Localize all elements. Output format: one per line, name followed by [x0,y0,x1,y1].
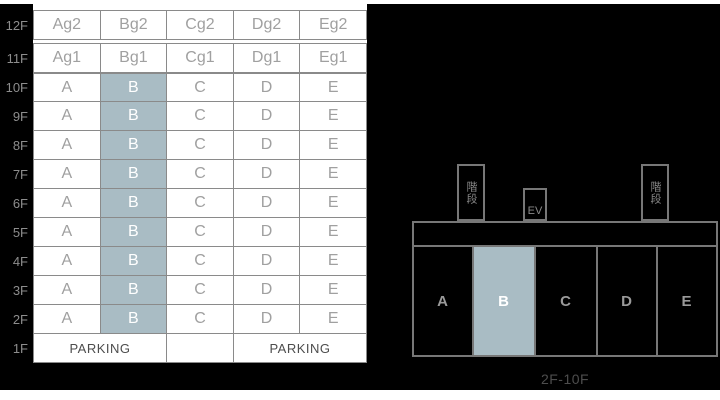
unit-cell-10F-D[interactable]: D [234,74,301,101]
floor-row-9F: ABCDE [33,102,367,131]
unit-cell-11F-Cg1[interactable]: Cg1 [167,44,234,72]
unit-cell-12F-Bg2[interactable]: Bg2 [101,11,168,39]
floor-label-3F: 3F [0,276,33,305]
parking-cell: PARKING [34,334,167,362]
unit-cell-4F-E[interactable]: E [300,247,366,275]
elevator-label: EV [528,205,543,217]
unit-cell-9F-D[interactable]: D [234,102,301,130]
unit-cell-5F-D[interactable]: D [234,218,301,246]
unit-cell-12F-Eg2[interactable]: Eg2 [300,11,366,39]
unit-cell-9F-C[interactable]: C [167,102,234,130]
unit-cell-3F-B[interactable]: B [101,276,168,304]
corridor [412,221,718,247]
floor-label-1F: 1F [0,334,33,363]
unit-cell-3F-D[interactable]: D [234,276,301,304]
floor-label-5F: 5F [0,218,33,247]
unit-cell-10F-A[interactable]: A [34,74,101,101]
unit-cell-5F-E[interactable]: E [300,218,366,246]
unit-cell-6F-D[interactable]: D [234,189,301,217]
unit-cell-6F-E[interactable]: E [300,189,366,217]
unit-cell-4F-C[interactable]: C [167,247,234,275]
unit-cell-10F-E[interactable]: E [300,74,366,101]
unit-cell-4F-B[interactable]: B [101,247,168,275]
floor-row-7F: ABCDE [33,160,367,189]
stairs-box-right: 階段 [641,164,669,221]
floor-row-6F: ABCDE [33,189,367,218]
unit-cell-5F-B[interactable]: B [101,218,168,246]
unit-cell-12F-Dg2[interactable]: Dg2 [234,11,301,39]
unit-cell-7F-C[interactable]: C [167,160,234,188]
unit-cell-6F-A[interactable]: A [34,189,101,217]
unit-cell-7F-A[interactable]: A [34,160,101,188]
unit-cell-7F-E[interactable]: E [300,160,366,188]
plan-units-row: ABCDE [412,245,718,357]
unit-cell-10F-C[interactable]: C [167,74,234,101]
unit-cell-8F-E[interactable]: E [300,131,366,159]
unit-cell-4F-A[interactable]: A [34,247,101,275]
stairs-label: 階段 [649,181,661,205]
floor-row-2F: ABCDE [33,305,367,334]
floor-label-12F: 12F [0,10,33,40]
unit-cell-3F-E[interactable]: E [300,276,366,304]
plan-caption: 2F-10F [412,371,718,387]
unit-cell-2F-A[interactable]: A [34,305,101,333]
plan-unit-A: A [412,245,474,357]
floor-label-10F: 10F [0,73,33,102]
floor-row-3F: ABCDE [33,276,367,305]
floor-row-1F: PARKINGPARKING [33,334,367,363]
floor-row-8F: ABCDE [33,131,367,160]
unit-cell-12F-Ag2[interactable]: Ag2 [34,11,101,39]
unit-cell-11F-Bg1[interactable]: Bg1 [101,44,168,72]
plan-unit-E: E [656,245,718,357]
unit-cell-2F-B[interactable]: B [101,305,168,333]
unit-cell-9F-E[interactable]: E [300,102,366,130]
unit-cell-2F-E[interactable]: E [300,305,366,333]
unit-cell-12F-Cg2[interactable]: Cg2 [167,11,234,39]
elevator-box: EV [523,188,547,221]
stairs-box-left: 階段 [457,164,485,221]
unit-cell-5F-A[interactable]: A [34,218,101,246]
floor-row-10F: ABCDE [33,73,367,102]
unit-cell-5F-C[interactable]: C [167,218,234,246]
unit-cell-8F-D[interactable]: D [234,131,301,159]
floor-label-4F: 4F [0,247,33,276]
plan-unit-D: D [596,245,658,357]
unit-cell-8F-C[interactable]: C [167,131,234,159]
unit-cell-11F-Ag1[interactable]: Ag1 [34,44,101,72]
unit-cell-2F-D[interactable]: D [234,305,301,333]
unit-cell-2F-C[interactable]: C [167,305,234,333]
unit-cell-11F-Eg1[interactable]: Eg1 [300,44,366,72]
unit-cell-3F-C[interactable]: C [167,276,234,304]
unit-cell-7F-D[interactable]: D [234,160,301,188]
stairs-label: 階段 [465,181,477,205]
empty-cell [167,334,234,362]
unit-cell-7F-B[interactable]: B [101,160,168,188]
unit-cell-10F-B[interactable]: B [101,74,168,101]
unit-cell-6F-C[interactable]: C [167,189,234,217]
parking-cell: PARKING [234,334,366,362]
floor-label-column: 12F11F10F9F8F7F6F5F4F3F2F1F [0,4,33,363]
floor-row-12F: Ag2Bg2Cg2Dg2Eg2 [33,10,367,40]
unit-cell-6F-B[interactable]: B [101,189,168,217]
floor-label-11F: 11F [0,43,33,73]
floor-label-2F: 2F [0,305,33,334]
floor-row-11F: Ag1Bg1Cg1Dg1Eg1 [33,43,367,73]
plan-unit-B: B [472,245,536,357]
floor-row-5F: ABCDE [33,218,367,247]
floor-label-8F: 8F [0,131,33,160]
floor-label-9F: 9F [0,102,33,131]
unit-cell-4F-D[interactable]: D [234,247,301,275]
floor-label-7F: 7F [0,160,33,189]
unit-cell-9F-A[interactable]: A [34,102,101,130]
unit-cell-3F-A[interactable]: A [34,276,101,304]
unit-cell-11F-Dg1[interactable]: Dg1 [234,44,301,72]
unit-cell-8F-B[interactable]: B [101,131,168,159]
floor-label-6F: 6F [0,189,33,218]
unit-cell-8F-A[interactable]: A [34,131,101,159]
unit-cell-9F-B[interactable]: B [101,102,168,130]
floor-row-4F: ABCDE [33,247,367,276]
floor-table: Ag2Bg2Cg2Dg2Eg2Ag1Bg1Cg1Dg1Eg1ABCDEABCDE… [33,4,367,363]
plan-unit-C: C [534,245,598,357]
